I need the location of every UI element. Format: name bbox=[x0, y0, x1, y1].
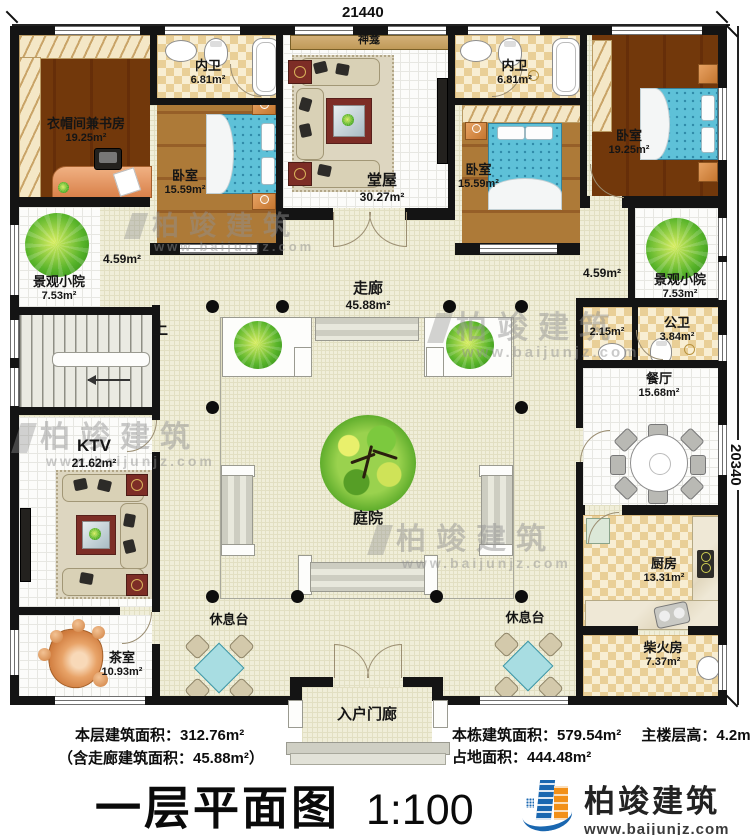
closet-strip-top bbox=[19, 35, 152, 59]
room-label-rest-right: 休息台 bbox=[482, 610, 568, 626]
porch-post bbox=[288, 700, 303, 728]
room-label-inner-courtyard: 庭院 bbox=[330, 510, 406, 528]
main-hall-side-table bbox=[288, 162, 312, 186]
dimension-tick bbox=[716, 11, 729, 24]
area-label-passage-left: 4.59m² bbox=[94, 252, 150, 266]
nightstand bbox=[698, 162, 718, 182]
nightstand bbox=[465, 122, 487, 140]
courtyard-step-cap bbox=[221, 544, 255, 556]
floor-plan: 21440 20340 bbox=[0, 0, 750, 835]
label-stair-up: 上 bbox=[148, 320, 172, 339]
courtyard-tree bbox=[320, 415, 416, 511]
stat-building-area: 本栋建筑面积：579.54m² bbox=[452, 727, 621, 744]
stair-arrow-head bbox=[82, 375, 96, 385]
room-label-rest-left: 休息台 bbox=[186, 612, 272, 628]
room-label-entry-porch: 入户门廊 bbox=[322, 706, 412, 724]
brand-name: 柏竣建筑 bbox=[584, 776, 729, 821]
dimension-line-right bbox=[737, 26, 739, 705]
room-label-firewood: 柴火房7.37m² bbox=[618, 640, 708, 669]
nightstand bbox=[252, 193, 276, 210]
brand-website: www.baijunjz.com bbox=[584, 821, 729, 835]
stat-floor-area: 本层建筑面积：312.76m² bbox=[75, 724, 244, 745]
room-label-public-toilet: 公卫3.84m² bbox=[642, 315, 712, 344]
drawing-title-block: 一层平面图1:100 bbox=[95, 772, 515, 835]
sofa-pillow bbox=[317, 164, 332, 177]
planter-left-notch bbox=[294, 347, 312, 377]
ktv-tv bbox=[20, 508, 31, 582]
courtyard-steps-north bbox=[315, 317, 419, 341]
room-label-ensuite-left: 内卫6.81m² bbox=[168, 58, 248, 87]
sofa-pillow bbox=[299, 123, 312, 138]
room-label-corridor: 走廊45.88m² bbox=[328, 280, 408, 312]
courtyard-steps-west bbox=[221, 475, 253, 546]
study-monitor bbox=[94, 148, 122, 170]
sofa-pillow bbox=[123, 513, 136, 528]
study-plant bbox=[58, 182, 69, 193]
tea-stool bbox=[72, 619, 85, 632]
watermark: 柏竣建筑 www.baijunjz.com bbox=[128, 212, 314, 254]
dining-chair bbox=[690, 455, 706, 475]
room-label-bedroom-left: 卧室15.59m² bbox=[135, 168, 235, 197]
scenic-plant-right bbox=[646, 218, 708, 280]
dining-table bbox=[630, 434, 688, 492]
table-plant bbox=[89, 528, 101, 540]
table-plant bbox=[342, 114, 354, 126]
room-label-bedroom-mid: 卧室15.59m² bbox=[436, 162, 521, 191]
stair-rail bbox=[52, 352, 150, 367]
stat-floor-height: 主楼层高：4.2m bbox=[641, 727, 750, 744]
dining-chair bbox=[610, 455, 626, 475]
dimension-top: 21440 bbox=[338, 4, 388, 21]
room-label-scenic-yard-right: 景观小院7.53m² bbox=[638, 272, 722, 301]
porch-step bbox=[290, 753, 446, 765]
dimension-right: 20340 bbox=[727, 440, 744, 490]
stat-incl-corridor: （含走廊建筑面积：45.88m²） bbox=[58, 747, 264, 768]
sofa-pillow bbox=[335, 63, 350, 76]
room-label-ensuite-right: 内卫6.81m² bbox=[472, 58, 557, 87]
nightstand bbox=[698, 64, 718, 84]
room-label-bedroom-right: 卧室19.25m² bbox=[583, 128, 675, 157]
stat-building-area-row: 本栋建筑面积：579.54m² 主楼层高：4.2m bbox=[452, 724, 750, 745]
stat-land-area: 占地面积：444.48m² bbox=[452, 746, 591, 767]
scenic-plant-left bbox=[25, 213, 89, 277]
tea-stool bbox=[38, 648, 51, 661]
main-hall-side-table bbox=[288, 60, 312, 84]
tea-stool bbox=[92, 626, 105, 639]
room-label-main-hall: 堂屋30.27m² bbox=[340, 172, 424, 204]
area-label-wash-area: 2.15m² bbox=[580, 326, 634, 339]
ktv-sofa-right bbox=[120, 503, 148, 569]
room-label-cloakroom-study: 衣帽间兼书房19.25m² bbox=[30, 116, 142, 145]
dimension-tick bbox=[6, 11, 19, 24]
brand-logo-icon bbox=[524, 778, 578, 830]
planter-plant-left bbox=[234, 321, 282, 369]
area-label-passage-right: 4.59m² bbox=[574, 266, 630, 280]
room-label-tea-room: 茶室10.93m² bbox=[80, 650, 164, 679]
brand-logo: 柏竣建筑 www.baijunjz.com bbox=[524, 776, 746, 832]
watermark: 柏竣建筑 www.baijunjz.com bbox=[372, 524, 571, 570]
wardrobe-strip-bedroom-right bbox=[592, 40, 612, 132]
pendant-lamp bbox=[684, 344, 695, 355]
room-label-scenic-yard-left: 景观小院7.53m² bbox=[17, 274, 101, 303]
room-label-ktv: KTV21.62m² bbox=[48, 436, 140, 471]
tea-stool bbox=[50, 630, 63, 643]
main-hall-tv bbox=[437, 78, 448, 164]
sofa-pillow bbox=[79, 572, 94, 585]
drawing-title: 一层平面图 bbox=[95, 782, 340, 834]
watermark-logo-icon bbox=[124, 213, 148, 239]
porch-post bbox=[433, 700, 448, 728]
room-label-kitchen: 厨房13.31m² bbox=[620, 556, 708, 585]
ktv-side-table bbox=[126, 574, 148, 596]
drawing-scale: 1:100 bbox=[366, 786, 474, 834]
room-label-shrine: 神龛 bbox=[330, 34, 408, 47]
wardrobe-strip-bedroom-mid bbox=[462, 105, 582, 123]
room-label-dining: 餐厅15.68m² bbox=[615, 371, 703, 400]
ktv-side-table bbox=[126, 474, 148, 496]
